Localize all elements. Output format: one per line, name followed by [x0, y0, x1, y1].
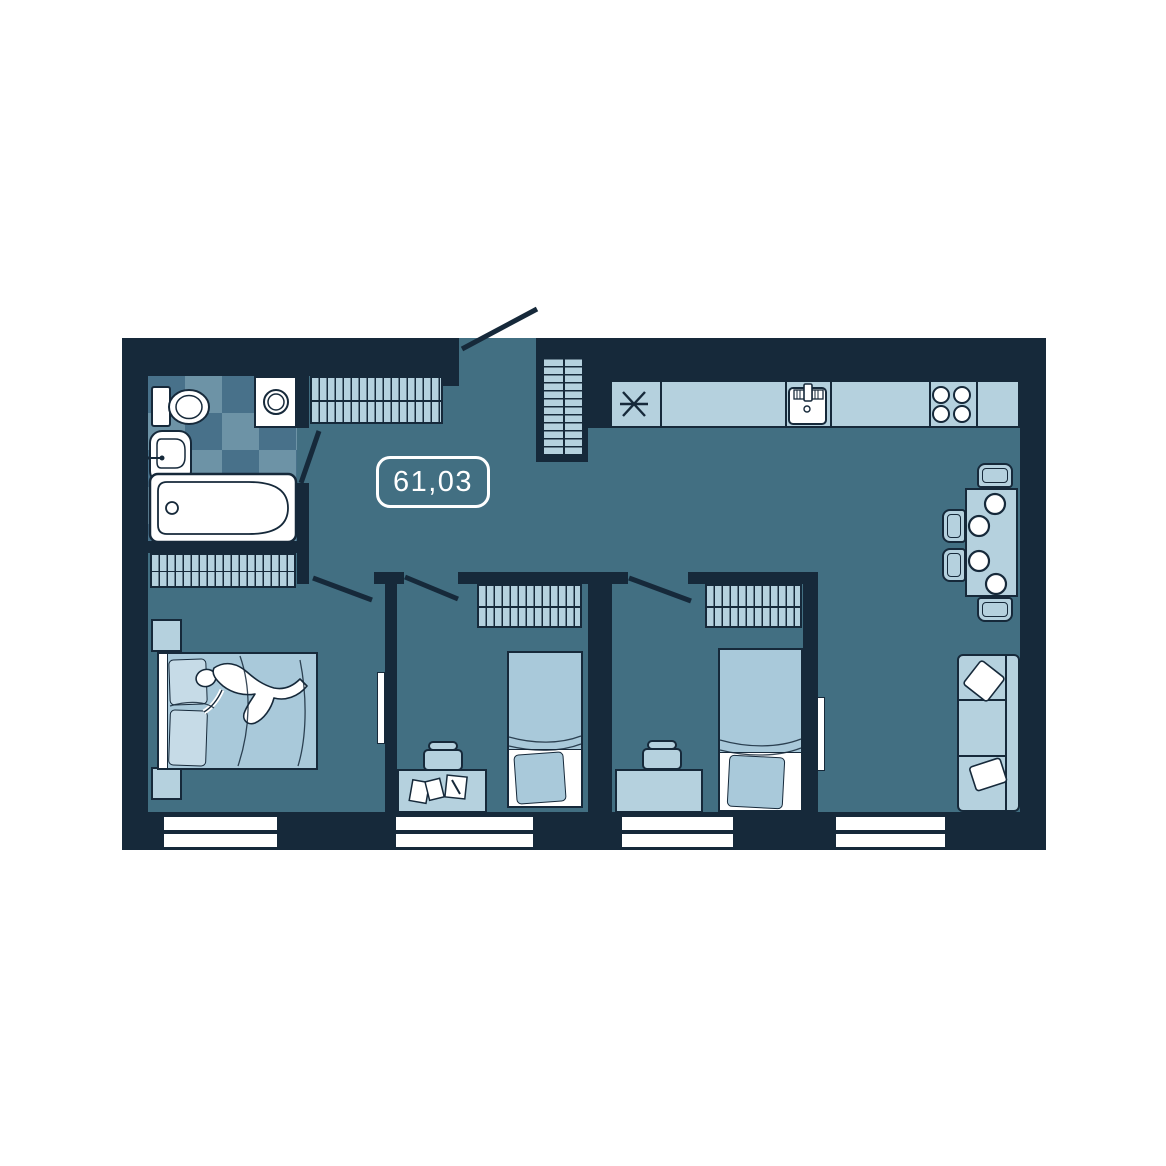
- bed-blanket: [509, 653, 581, 750]
- bathroom-tile-floor: [148, 376, 297, 541]
- window-bedroom2: [396, 834, 533, 847]
- hall-wardrobe: [310, 376, 443, 424]
- bedroom2-wardrobe: [477, 584, 582, 628]
- sofa-cushion-line: [958, 699, 1006, 701]
- wall-bathroom-right-lower: [297, 483, 309, 584]
- sofa-cushion-line: [958, 755, 1006, 757]
- bedroom2-desk: [397, 769, 487, 813]
- bedroom3-wardrobe: [705, 584, 802, 628]
- area-label: 61,03: [376, 456, 490, 508]
- counter-divider: [976, 382, 978, 426]
- tv-master: [377, 672, 385, 744]
- wall-right: [1020, 338, 1046, 850]
- counter-divider: [929, 382, 931, 426]
- bedroom2-chair-seat: [423, 749, 463, 771]
- dining-chair-left1: [942, 509, 966, 543]
- counter-divider: [785, 382, 787, 426]
- nightstand-bottom: [151, 767, 182, 800]
- bed-pillow: [513, 751, 566, 804]
- double-bed: [157, 652, 318, 770]
- tv-living: [817, 697, 825, 771]
- wall-top-left: [122, 338, 443, 376]
- wall-br2-top: [458, 572, 588, 584]
- window-living: [836, 817, 945, 830]
- dining-chair-top: [977, 463, 1013, 488]
- kitchen-counter: [610, 380, 1020, 428]
- bed-pillow: [168, 709, 208, 766]
- dining-chair-left2: [942, 548, 966, 582]
- wall-br3-living: [803, 572, 818, 812]
- window-bedroom3: [622, 817, 733, 830]
- bedroom3-desk: [615, 769, 703, 813]
- bedroom2-bed: [507, 651, 583, 808]
- master-wardrobe: [150, 553, 296, 588]
- wall-entrance-stub: [443, 338, 459, 386]
- window-bedroom2: [396, 817, 533, 830]
- dining-table: [965, 488, 1018, 597]
- wall-br2-br3: [588, 572, 612, 812]
- bed-headboard: [159, 654, 168, 768]
- chair-seat: [982, 468, 1008, 483]
- chair-seat: [982, 602, 1008, 617]
- dining-chair-bottom: [977, 597, 1013, 622]
- chair-seat: [947, 553, 961, 577]
- bedroom3-chair-seat: [642, 748, 682, 770]
- sofa-backrest-line: [1005, 656, 1007, 810]
- wall-br3-top: [688, 572, 818, 584]
- window-master: [164, 817, 277, 830]
- wall-master-br2: [385, 572, 397, 812]
- bed-blanket: [720, 650, 801, 753]
- wall-top-right: [538, 338, 1046, 380]
- wall-bathroom-right-upper: [297, 376, 309, 428]
- wall-bathroom-bottom: [122, 541, 309, 553]
- counter-divider: [660, 382, 662, 426]
- nightstand-top: [151, 619, 182, 652]
- bed-pillow: [727, 755, 786, 810]
- window-master: [164, 834, 277, 847]
- window-bedroom3: [622, 834, 733, 847]
- window-living: [836, 834, 945, 847]
- wall-left: [122, 338, 148, 850]
- chair-seat: [947, 514, 961, 538]
- bed-pillow: [168, 658, 208, 705]
- counter-divider: [830, 382, 832, 426]
- wall-kitchen-niche: [584, 338, 612, 428]
- floorplan-canvas: 61,03: [0, 0, 1166, 1166]
- entrance-floor-patch: [459, 338, 538, 380]
- bedroom3-bed: [718, 648, 803, 812]
- entry-coat-rack-front: [542, 356, 584, 456]
- wall-br3-door-stub: [612, 572, 628, 584]
- sofa: [957, 654, 1020, 812]
